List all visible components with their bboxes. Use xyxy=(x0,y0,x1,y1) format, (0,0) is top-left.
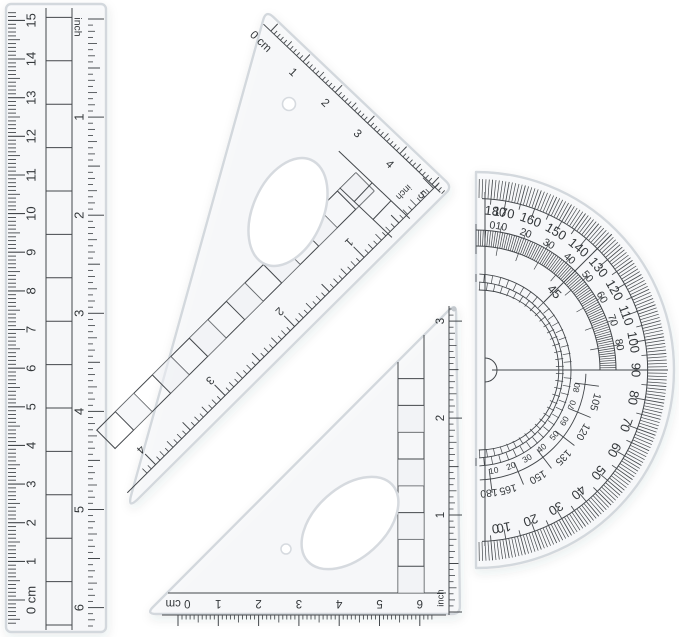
small-square-cm-label: 0 cm xyxy=(166,597,191,609)
ruler-cm-label: 1 xyxy=(24,558,39,565)
protractor-outer-degree-label: 90 xyxy=(628,363,643,377)
small-square-inch-label: 2 xyxy=(435,415,447,421)
small-square-cm-label: 2 xyxy=(255,597,261,609)
ruler-cm-label: 10 xyxy=(24,206,39,220)
ruler-unit-label: inch xyxy=(71,17,83,36)
small-square-inch-label: 3 xyxy=(435,318,447,324)
small-square-cm-label: 6 xyxy=(417,597,423,609)
protractor-reverse-degree-label: 80 xyxy=(571,382,583,393)
ruler-cm-label: 14 xyxy=(24,52,39,66)
ruler-cm-label: 3 xyxy=(24,480,39,487)
small-square-corner-dot xyxy=(452,307,457,312)
small-square-cm-label: 5 xyxy=(376,597,382,609)
protractor-lower-degree-label: 180 xyxy=(479,486,498,500)
protractor-inner-degree-label: 80 xyxy=(612,338,626,352)
protractor: 1801701601501401301201101009080706050403… xyxy=(476,172,674,568)
ruler-cm-label: 11 xyxy=(24,168,39,182)
ruler-inch-label: 3 xyxy=(72,310,87,317)
ruler-cm-label: 2 xyxy=(24,519,39,526)
ruler-inch-label: 2 xyxy=(72,212,87,219)
ruler-cm-label: 7 xyxy=(24,326,39,333)
ruler-cm-label: 15 xyxy=(24,13,39,27)
ruler-cm-label: 8 xyxy=(24,287,39,294)
protractor-reverse-degree-label: 10 xyxy=(488,465,499,477)
small-square-cm-label: 3 xyxy=(296,597,302,609)
geometry-set-photo: 0 cm123456789101112131415123456inch 0 cm… xyxy=(0,0,679,637)
ruler-cm-label: 0 cm xyxy=(24,586,39,614)
product-photo: 0 cm123456789101112131415123456inch 0 cm… xyxy=(0,0,679,637)
protractor-outer-degree-label: 80 xyxy=(625,389,642,406)
ruler-inch-label: 4 xyxy=(72,408,87,415)
ruler-cm-label: 13 xyxy=(24,90,39,104)
ruler-cm-label: 9 xyxy=(24,249,39,256)
small-square-cm-label: 4 xyxy=(335,597,342,609)
small-square-inch-label: 1 xyxy=(435,512,447,518)
ruler: 0 cm123456789101112131415123456inch xyxy=(6,4,106,632)
protractor-inner-degree-label: 10 xyxy=(494,220,508,234)
ruler-inch-label: 5 xyxy=(72,506,87,513)
ruler-cm-label: 12 xyxy=(24,129,39,143)
small-square-pin-hole xyxy=(281,544,291,554)
small-square-inch-unit-label: inch xyxy=(435,589,446,606)
small-square-cm-label: 1 xyxy=(215,597,221,609)
ruler-inch-label: 1 xyxy=(72,113,87,120)
ruler-cm-label: 5 xyxy=(24,403,39,410)
ruler-cm-label: 4 xyxy=(24,442,39,449)
ruler-cm-label: 6 xyxy=(24,365,39,372)
ruler-inch-label: 6 xyxy=(72,604,87,611)
large-square-pin-hole xyxy=(283,98,296,111)
